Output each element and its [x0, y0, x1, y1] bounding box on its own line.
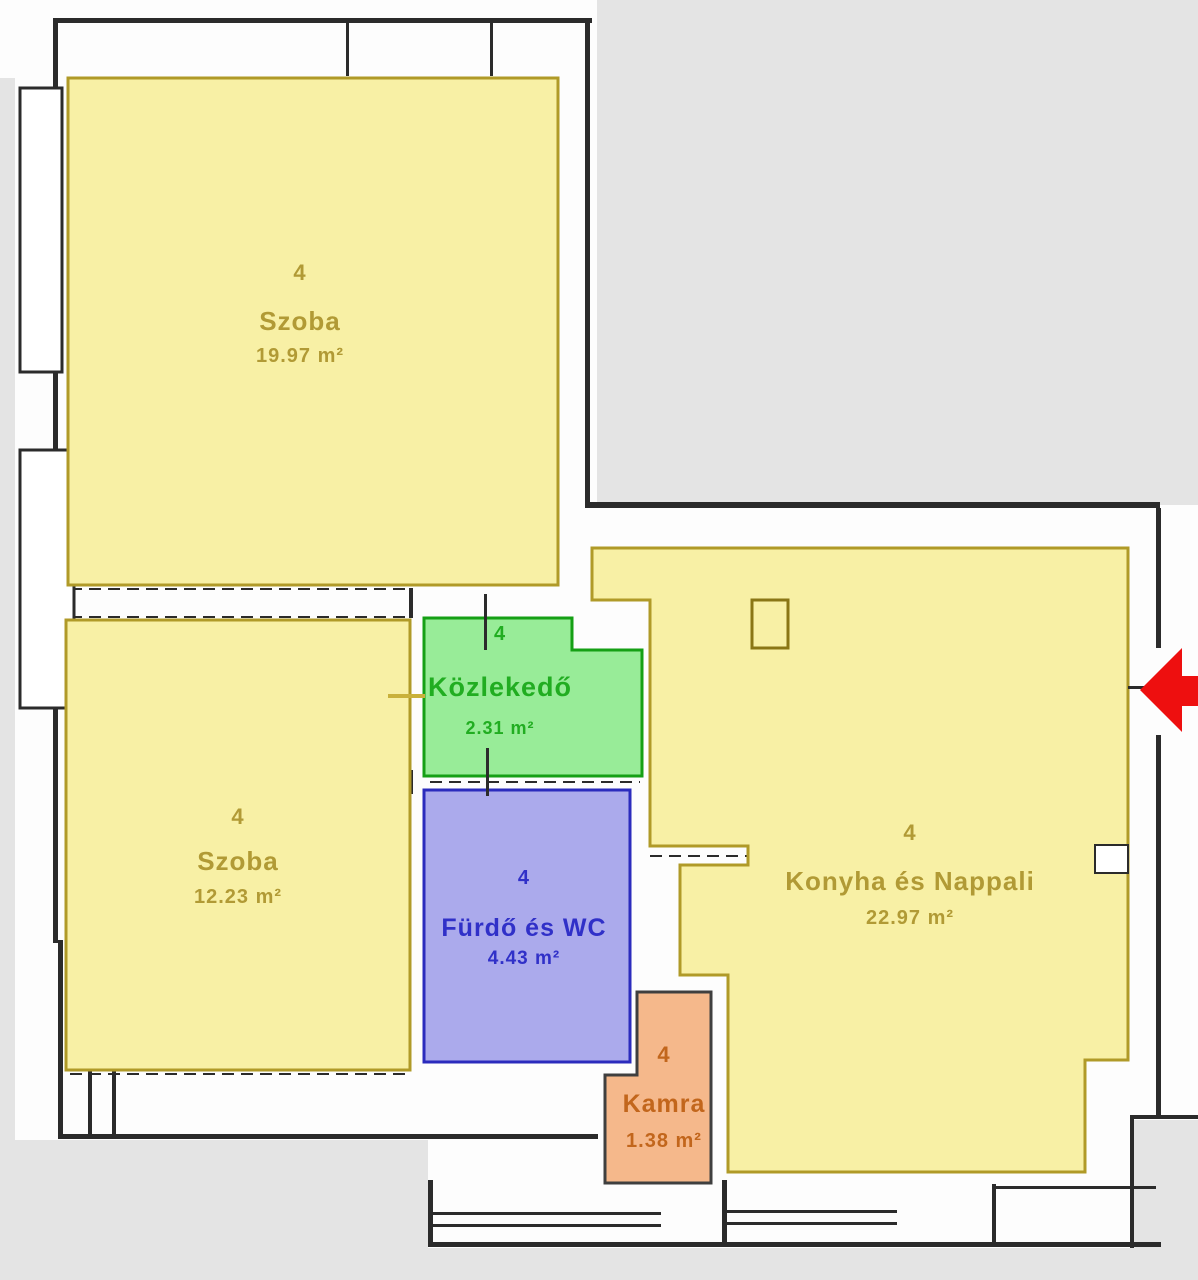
- room-number: 4: [623, 1044, 706, 1066]
- room-name: Fürdő és WC: [441, 916, 606, 941]
- wall-top-window-mullion-1: [346, 23, 349, 76]
- wall-top: [55, 18, 592, 23]
- wall-top-window-mullion-2: [490, 23, 493, 76]
- room-number: 4: [785, 822, 1035, 844]
- wall-corridor-window-3: [996, 1186, 1156, 1189]
- wall-left-lower: [58, 940, 63, 1138]
- outside-area-bottom-right: [1133, 1120, 1198, 1280]
- floor-plan-canvas: [0, 0, 1198, 1280]
- outside-area-top-right: [597, 0, 1198, 505]
- room-label-kamra: 4 Kamra 1.38 m²: [623, 1044, 706, 1151]
- wall-bottom-left: [58, 1134, 598, 1139]
- outside-area-left-strip: [0, 78, 15, 1280]
- wall-corridor-window-2a: [727, 1210, 897, 1213]
- wall-right-lower: [1156, 735, 1161, 1117]
- room-name: Szoba: [194, 848, 282, 874]
- wall-gray-bottom: [585, 502, 1160, 508]
- room-name: Kamra: [623, 1092, 706, 1117]
- room-name: Konyha és Nappali: [785, 868, 1035, 894]
- wall-corridor-window-2b: [727, 1222, 897, 1225]
- wall-bottom-right-left: [1130, 1115, 1134, 1248]
- room-area: 22.97 m²: [785, 908, 1035, 928]
- room-area: 4.43 m²: [441, 949, 606, 968]
- room-label-furdo: 4 Fürdő és WC 4.43 m²: [441, 868, 606, 968]
- room-area: 19.97 m²: [256, 346, 344, 366]
- wall-corridor-window-1b: [433, 1224, 661, 1227]
- wall-stub-szoba2-top: [409, 588, 413, 618]
- door-notch-konyha-right: [1095, 845, 1128, 873]
- room-label-szoba-1: 4 Szoba 19.97 m²: [256, 262, 344, 366]
- room-name: Szoba: [256, 308, 344, 334]
- wall-corridor-window-1a: [433, 1212, 661, 1215]
- entrance-arrow-icon: [1140, 648, 1198, 732]
- door-dash-szoba2: [388, 694, 425, 698]
- room-label-kozlekedo: 4 Közlekedő 2.31 m²: [428, 624, 572, 737]
- room-area: 2.31 m²: [428, 719, 572, 737]
- wall-corridor-mid: [722, 1180, 727, 1246]
- door-tick-kozlekedo-bottom: [486, 748, 489, 796]
- wall-gray-left: [585, 18, 590, 508]
- room-name: Közlekedő: [428, 674, 572, 701]
- outside-area-bottom-strip: [0, 1248, 1198, 1280]
- floor-plan: 4 Szoba 19.97 m² 4 Szoba 12.23 m² 4 Közl…: [0, 0, 1198, 1280]
- wall-corridor-left: [428, 1180, 433, 1246]
- wall-bottom-right-top: [1133, 1115, 1198, 1119]
- wall-corridor-bottom: [428, 1242, 1161, 1247]
- wall-corridor-right: [992, 1184, 996, 1244]
- room-label-szoba-2: 4 Szoba 12.23 m²: [194, 806, 282, 907]
- room-area: 12.23 m²: [194, 887, 282, 907]
- room-number: 4: [441, 868, 606, 888]
- room-area: 1.38 m²: [623, 1131, 706, 1151]
- wall-right-upper: [1156, 508, 1161, 648]
- room-label-konyha: 4 Konyha és Nappali 22.97 m²: [785, 822, 1035, 928]
- window-bay-1: [20, 88, 62, 372]
- room-number: 4: [256, 262, 344, 284]
- room-number: 4: [428, 624, 572, 644]
- room-number: 4: [194, 806, 282, 828]
